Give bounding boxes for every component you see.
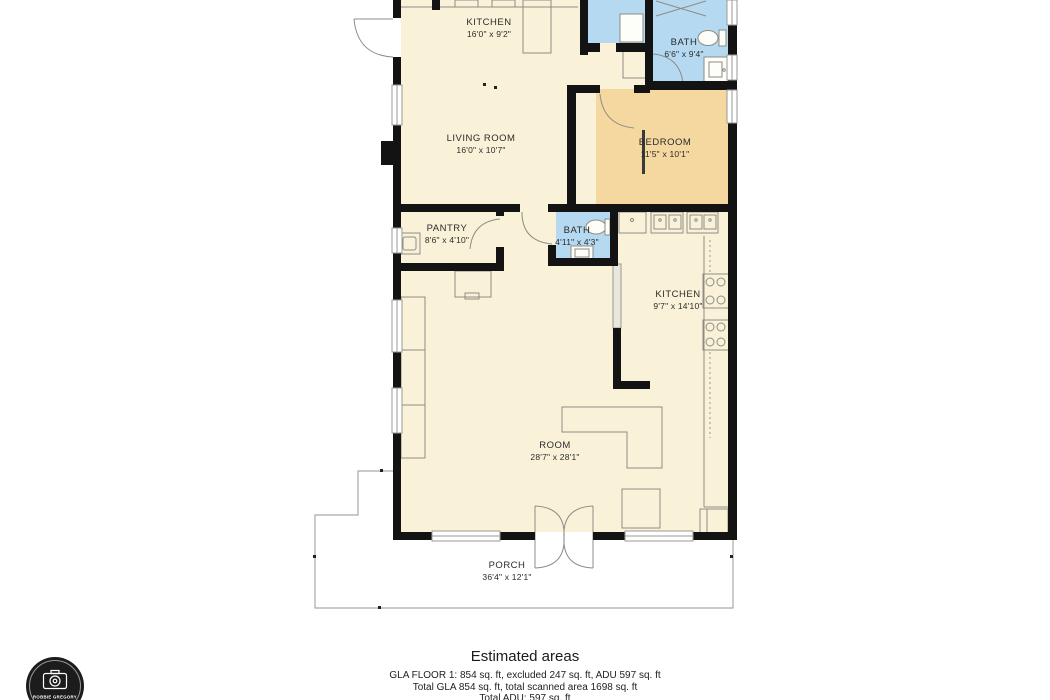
toilet-tank	[605, 219, 610, 235]
room-name: PANTRY	[425, 223, 469, 234]
floorplan-drawing	[0, 0, 1050, 700]
room-dims: 11'5" x 10'1"	[639, 149, 692, 159]
gla-line-1: GLA FLOOR 1: 854 sq. ft, excluded 247 sq…	[389, 670, 660, 682]
window	[392, 388, 402, 433]
window	[432, 531, 500, 541]
room-dims: 4'11" x 4'3"	[555, 237, 599, 247]
room-label-bedroom: BEDROOM 11'5" x 10'1"	[639, 137, 692, 159]
room-name: BEDROOM	[639, 137, 692, 148]
room-dims: 16'0" x 9'2"	[466, 29, 511, 39]
french-door-arc	[564, 537, 593, 568]
pass-through-counter	[613, 264, 621, 328]
room-dims: 16'0" x 10'7"	[447, 145, 516, 155]
brand-logo: ROBBIE GREGORY	[26, 657, 84, 700]
room-label-pantry: PANTRY 8'6" x 4'10"	[425, 223, 469, 245]
gla-line-2: Total GLA 854 sq. ft, total scanned area…	[389, 682, 660, 694]
estimated-areas-block: Estimated areas GLA FLOOR 1: 854 sq. ft,…	[389, 648, 660, 700]
room-dims: 36'4" x 12'1"	[482, 572, 531, 582]
logo-brand-text: ROBBIE GREGORY	[33, 695, 77, 700]
brand-logo-badge: ROBBIE GREGORY	[26, 657, 84, 700]
window	[392, 228, 402, 253]
window	[625, 531, 693, 541]
room-name: PORCH	[482, 560, 531, 571]
room-label-living-room: LIVING ROOM 16'0" x 10'7"	[447, 133, 516, 155]
window	[727, 55, 737, 80]
fireplace-bump	[381, 141, 401, 165]
floor-dot	[494, 86, 497, 89]
sink-vanity	[571, 246, 593, 260]
room-name: BATH	[664, 37, 703, 48]
estimated-areas-title: Estimated areas	[389, 648, 660, 665]
sink-vanity	[704, 57, 728, 82]
room-name: ROOM	[530, 440, 579, 451]
room-label-bath-1: BATH 6'6" x 9'4"	[664, 37, 703, 59]
window	[392, 85, 402, 125]
room-dims: 28'7" x 28'1"	[530, 452, 579, 462]
gla-line-3: Total ADU: 597 sq. ft	[389, 693, 660, 700]
room-name: KITCHEN	[466, 17, 511, 28]
bath-fixture	[620, 14, 643, 42]
toilet-tank	[719, 30, 726, 46]
room-name: LIVING ROOM	[447, 133, 516, 144]
room-dims: 9'7" x 14'10"	[653, 301, 702, 311]
window	[727, 90, 737, 123]
room-label-room: ROOM 28'7" x 28'1"	[530, 440, 579, 462]
room-name: KITCHEN	[653, 289, 702, 300]
room-dims: 6'6" x 9'4"	[664, 49, 703, 59]
french-door-arc	[535, 537, 564, 568]
room-label-bath-2: BATH 4'11" x 4'3"	[555, 225, 599, 247]
room-dims: 8'6" x 4'10"	[425, 235, 469, 245]
window	[392, 300, 402, 352]
entry-door-arc	[354, 19, 393, 57]
room-label-kitchen-2: KITCHEN 9'7" x 14'10"	[653, 289, 702, 311]
room-label-kitchen-1: KITCHEN 16'0" x 9'2"	[466, 17, 511, 39]
floor-dot	[483, 83, 486, 86]
floorplan-page: KITCHEN 16'0" x 9'2" BATH 6'6" x 9'4" LI…	[0, 0, 1050, 700]
room-name: BATH	[555, 225, 599, 236]
room-label-porch: PORCH 36'4" x 12'1"	[482, 560, 531, 582]
window	[727, 0, 737, 25]
